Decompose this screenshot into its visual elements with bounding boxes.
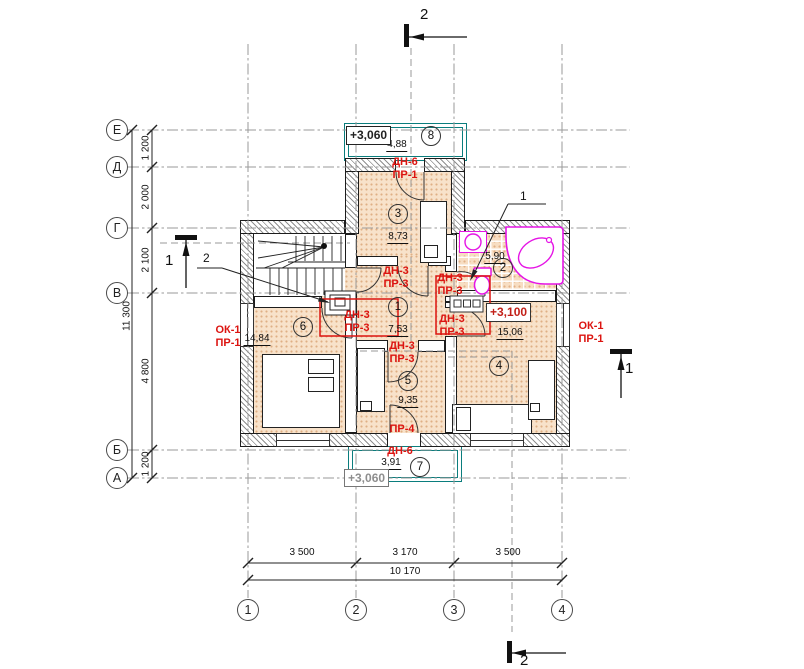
section-marker-2-bottom: [507, 641, 566, 663]
wardrobe-room3-drawer: [424, 245, 438, 258]
axis-col-4: 4: [551, 599, 573, 621]
partition-stair-east-b: [345, 292, 357, 308]
axis-col-1: 1: [237, 599, 259, 621]
mark-door-bath: ДН-3 ПР-3: [437, 272, 463, 298]
mark-line: ПР-3: [383, 278, 408, 290]
dim-left-4: 4 800: [141, 358, 152, 383]
dim-bottom-3: 3 500: [495, 547, 520, 558]
dim-left-5: 1 200: [141, 451, 152, 476]
mark-line: ДН-6: [392, 156, 418, 168]
axis-row-E: Е: [106, 119, 128, 141]
mark-line: ПР-3: [344, 322, 369, 334]
room-4-bubble: 4: [489, 356, 509, 376]
room-number: 1: [395, 301, 401, 313]
room-7-area: 3,91: [380, 457, 401, 470]
mark-door-room3: ДН-3 ПР-3: [383, 265, 409, 291]
axis-row-D: Д: [106, 156, 128, 178]
wall-protrusion-top-right: [424, 158, 465, 172]
section-1-label-right: 1: [625, 360, 633, 377]
axis-row-label: Д: [113, 160, 121, 174]
section-1-label-left: 1: [165, 252, 173, 269]
room-number: 4: [496, 360, 502, 372]
stairwell-floor: [254, 234, 345, 296]
floor-plan-drawing: Е Д Г В Б А 1 2 3 4 3 500 3 170 3 500 10…: [0, 0, 804, 669]
axis-col-label: 4: [559, 603, 566, 617]
room-7-bubble: 7: [410, 457, 430, 477]
room-number: 5: [405, 375, 411, 387]
axis-col-label: 2: [353, 603, 360, 617]
mark-line: ДН-3: [437, 272, 463, 284]
axis-row-A: А: [106, 467, 128, 489]
dim-bottom-1: 3 500: [289, 547, 314, 558]
pillow: [308, 377, 334, 392]
washing-machine: [459, 231, 487, 253]
wardrobe-room4-drawer: [530, 403, 540, 412]
room-number: 7: [417, 461, 423, 473]
window-right: [556, 303, 570, 347]
room-5-bubble: 5: [398, 371, 418, 391]
mark-door-room4: ДН-3 ПР-3: [439, 313, 465, 339]
mark-line: ПР-1: [215, 337, 240, 349]
axis-row-label: А: [113, 471, 121, 485]
partition-stair-east-a: [345, 234, 357, 268]
room-1-area: 7,53: [387, 324, 408, 337]
mark-line: ПР-1: [578, 333, 603, 345]
dim-left-2: 2 000: [141, 184, 152, 209]
room-6-bubble: 6: [293, 317, 313, 337]
window-bottom-room6: [276, 433, 330, 447]
elevation-room4: +3,100: [486, 303, 531, 322]
room-8-bubble: 8: [421, 126, 441, 146]
axis-row-label: Б: [113, 443, 121, 457]
section-2-label-bottom: 2: [520, 652, 528, 669]
section-marker-1-left: [175, 235, 197, 288]
pillow: [456, 407, 471, 431]
window-bottom-room4: [470, 433, 524, 447]
mark-window-left: ОК-1 ПР-1: [215, 324, 240, 350]
axis-col-2: 2: [345, 599, 367, 621]
mark-opening-bottom: ПР-4: [389, 423, 414, 436]
dim-bottom-total: 10 170: [390, 566, 421, 577]
axis-col-3: 3: [443, 599, 465, 621]
wall-protrusion-top-left: [345, 158, 396, 172]
wardrobe-room5-drawer: [360, 401, 372, 411]
pillow: [308, 359, 334, 374]
mark-line: ОК-1: [215, 324, 240, 336]
room-2-area: 5,90: [484, 251, 505, 264]
axis-row-label: В: [113, 286, 121, 300]
mark-line: ДН-3: [344, 309, 370, 321]
dim-left-3: 2 100: [141, 247, 152, 272]
dim-left-1: 1 200: [141, 135, 152, 160]
room-number: 2: [500, 262, 506, 274]
partition-center-a: [445, 302, 457, 308]
room-4-area: 15,06: [496, 327, 523, 340]
mark-line: ПР-3: [437, 285, 462, 297]
room-number: 8: [428, 130, 434, 142]
elevation-balcony-top: +3,060: [346, 126, 391, 145]
axis-col-label: 3: [451, 603, 458, 617]
axis-row-G: Г: [106, 217, 128, 239]
axis-row-label: Г: [114, 221, 121, 235]
mark-line: ДН-3: [389, 340, 415, 352]
room-3-bubble: 3: [388, 204, 408, 224]
mark-line: ДН-3: [383, 265, 409, 277]
partition-bath-south: [457, 290, 556, 302]
dim-bottom-2: 3 170: [392, 547, 417, 558]
mark-door-room6: ДН-3 ПР-3: [344, 309, 370, 335]
partition-stair-south: [254, 296, 322, 308]
mark-line: ДН-3: [439, 313, 465, 325]
mark-line: ОК-1: [578, 320, 603, 332]
callout-2-label: 2: [203, 251, 210, 265]
section-marker-2-top: [404, 24, 467, 47]
room-number: 6: [300, 321, 306, 333]
mark-window-right: ОК-1 ПР-1: [578, 320, 603, 346]
elevation-balcony-bottom: +3,060: [344, 469, 389, 487]
room-1-bubble: 1: [388, 297, 408, 317]
mark-line: ПР-3: [389, 353, 414, 365]
wall-top-left: [240, 220, 345, 234]
room-3-area: 8,73: [387, 231, 408, 244]
mark-door-balcony-bottom: ДН-6: [387, 445, 413, 458]
axis-col-label: 1: [245, 603, 252, 617]
dim-left-total: 11 300: [122, 301, 133, 331]
callout-1-label: 1: [520, 189, 527, 203]
partition-hall-south-b: [418, 340, 445, 352]
section-2-label-top: 2: [420, 6, 428, 23]
mark-line: ПР-3: [439, 326, 464, 338]
mark-line: ПР-1: [392, 169, 417, 181]
mark-door-balcony-top: ДН-6 ПР-1: [392, 156, 418, 182]
axis-row-label: Е: [113, 123, 121, 137]
axis-row-B: Б: [106, 439, 128, 461]
room-6-area: 14,84: [243, 333, 270, 346]
room-5-area: 9,35: [397, 395, 418, 408]
mark-door-room5: ДН-3 ПР-3: [389, 340, 415, 366]
room-number: 3: [395, 208, 401, 220]
